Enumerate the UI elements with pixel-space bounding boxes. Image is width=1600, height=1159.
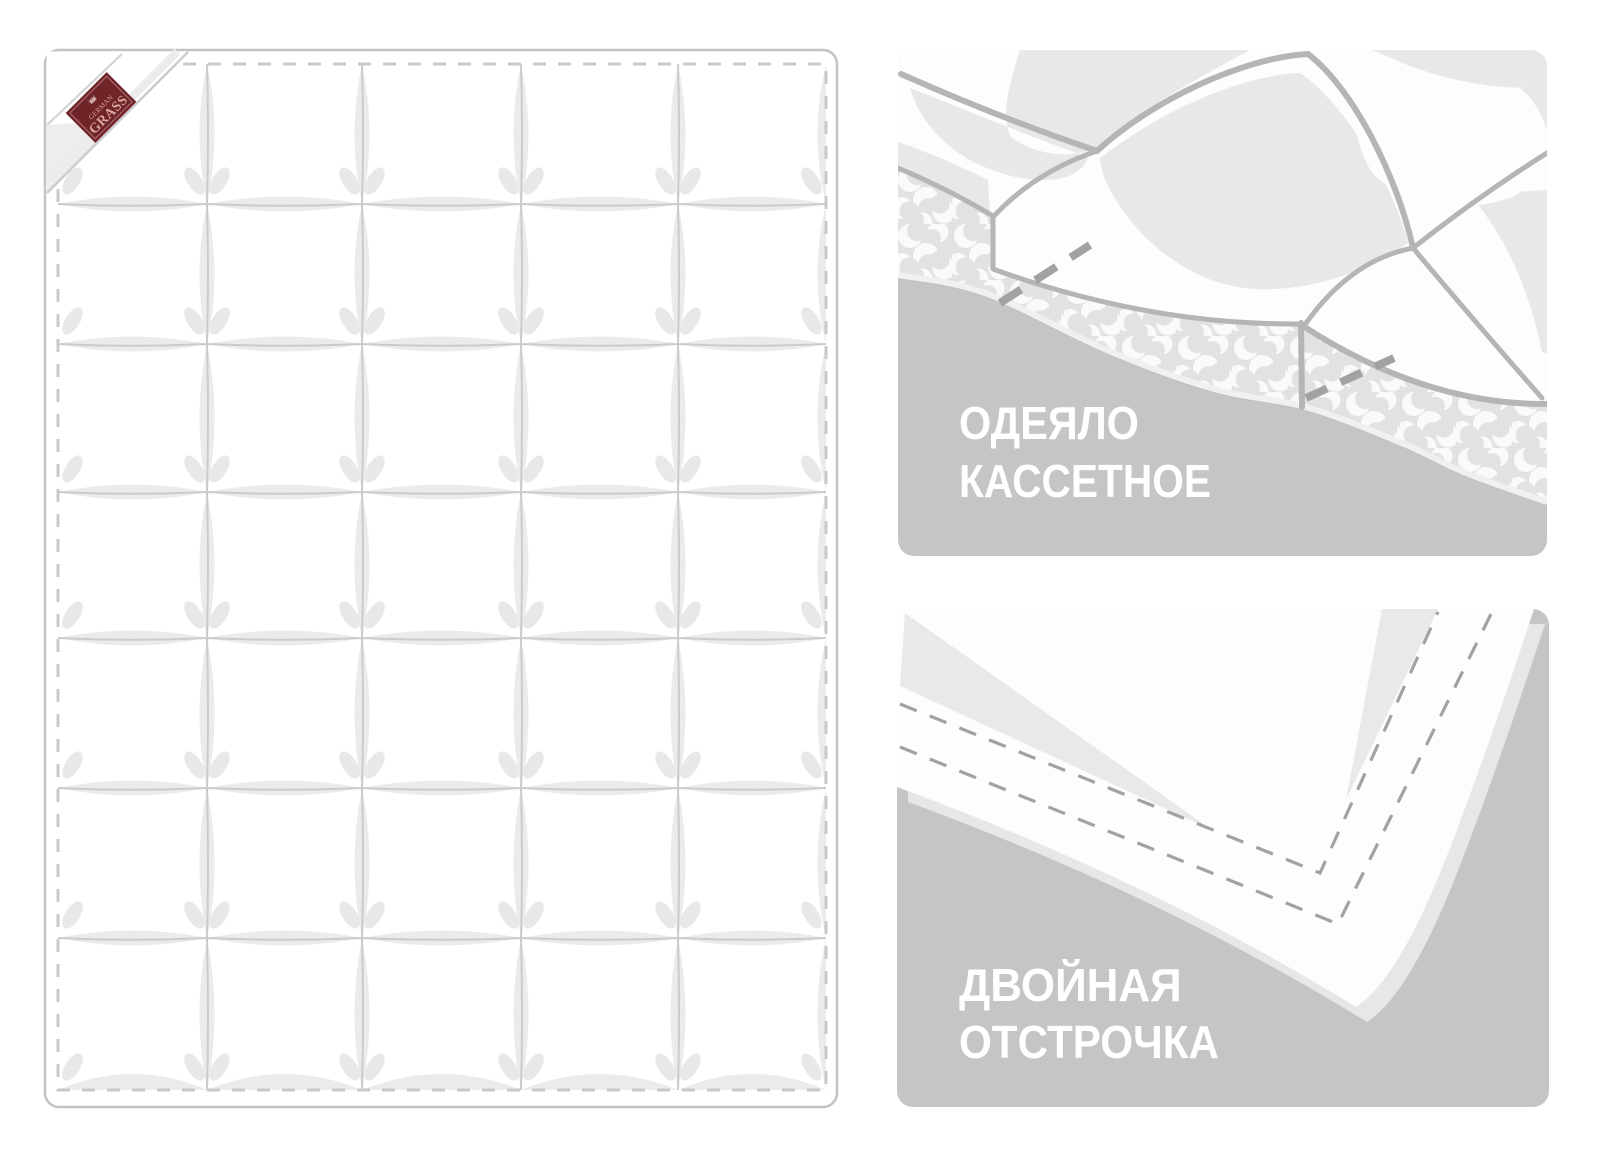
svg-text:ОТСТРОЧКА: ОТСТРОЧКА [959, 1017, 1219, 1068]
svg-text:ДВОЙНАЯ: ДВОЙНАЯ [959, 959, 1182, 1011]
svg-text:КАССЕТНОЕ: КАССЕТНОЕ [959, 457, 1211, 508]
svg-text:ОДЕЯЛО: ОДЕЯЛО [959, 398, 1139, 449]
